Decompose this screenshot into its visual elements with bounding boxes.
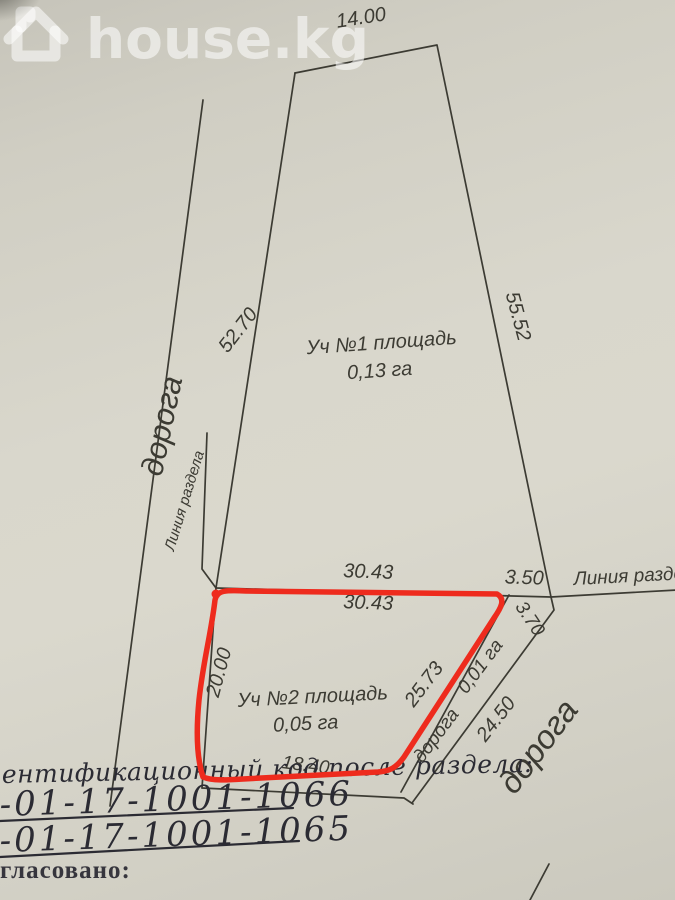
red-outline-start-dot xyxy=(212,590,221,599)
brand-name: house.kg xyxy=(86,7,369,71)
road-strip-outer-length-label: 24.50 xyxy=(472,693,521,747)
right-edge-length-label: 55.52 xyxy=(501,289,535,343)
road-strip-top-length-label: 3.70 xyxy=(511,598,549,641)
plot1-area-label: 0,13 га xyxy=(346,358,413,384)
plot2-title-label: Уч №2 площадь xyxy=(236,682,388,712)
division-right-length-label: 3.50 xyxy=(504,566,544,589)
approval-label: гласовано: xyxy=(0,857,131,884)
brand-watermark: house.kg xyxy=(9,7,369,71)
division-line-right-label: Линия раздела xyxy=(571,562,675,590)
road-left-label: дорога xyxy=(134,373,189,479)
plot1-title-label: Уч №1 площадь xyxy=(305,327,458,360)
division-length-label-top: 30.43 xyxy=(343,560,394,584)
road-continuation-line xyxy=(530,864,549,900)
plot2-area-label: 0,05 га xyxy=(273,711,339,736)
plan-drawing: 14.00 52.70 55.52 Уч №1 площадь 0,13 га … xyxy=(0,0,675,900)
scanned-cadastral-plan: 14.00 52.70 55.52 Уч №1 площадь 0,13 га … xyxy=(0,0,675,900)
house-icon xyxy=(9,12,63,56)
division-line-extension xyxy=(551,590,675,597)
